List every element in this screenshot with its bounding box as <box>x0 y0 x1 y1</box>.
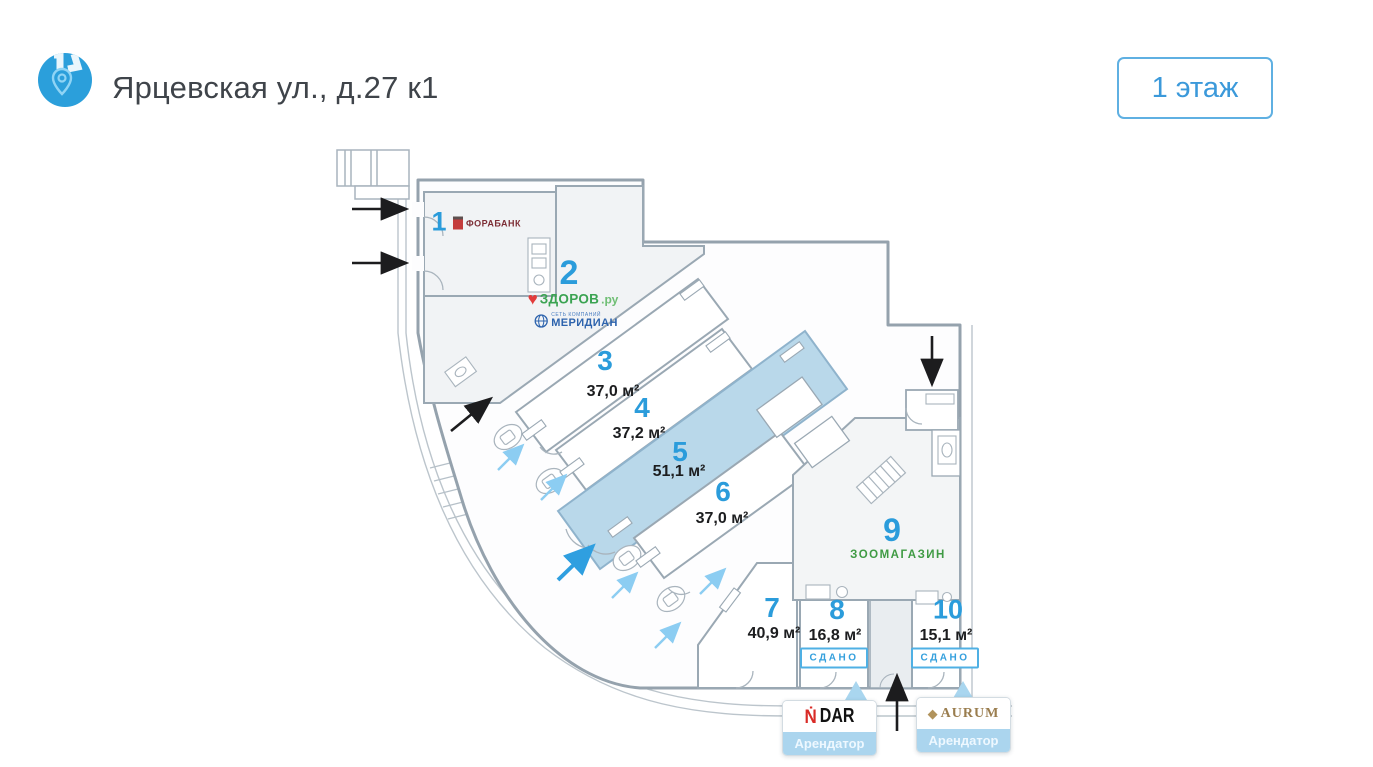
app-logo <box>38 53 92 107</box>
unit-6-number[interactable]: 6 <box>715 478 731 506</box>
unit-9-tenant: ЗООМАГАЗИН <box>850 549 946 561</box>
unit-10-status-badge: СДАНО <box>911 648 979 669</box>
tenant-callout-aurum: ◆ AURUM Арендатор <box>916 697 1011 753</box>
unit-10-area: 15,1 м² <box>920 628 973 644</box>
meridian-logo: СЕТЬ КОМПАНИЙ МЕРИДИАН <box>534 313 618 329</box>
tenant-label: Арендатор <box>917 729 1010 752</box>
unit-6-area: 37,0 м² <box>696 511 749 527</box>
unit-8-area: 16,8 м² <box>809 628 862 644</box>
tenant-callout-dar: Ṅ DAR Арендатор <box>782 700 877 756</box>
unit-10-number[interactable]: 10 <box>933 597 963 624</box>
forabank-icon <box>453 217 463 230</box>
dar-logo: Ṅ DAR <box>783 701 876 732</box>
tenant-label: Арендатор <box>783 732 876 755</box>
unit-7-area: 40,9 м² <box>748 626 801 642</box>
heart-icon: ♥ <box>528 291 538 308</box>
forabank-logo: ФОРАБАНК <box>453 217 521 230</box>
top-left-stairs <box>337 150 409 199</box>
unit-4-number[interactable]: 4 <box>634 394 650 422</box>
zdorov-logo: ♥ ЗДОРОВ.ру <box>528 291 619 308</box>
unit-2-number[interactable]: 2 <box>560 256 579 290</box>
unit-5-number[interactable]: 5 <box>672 438 688 466</box>
unit-1-number[interactable]: 1 <box>431 209 446 236</box>
floor-selector-button[interactable]: 1 этаж <box>1117 57 1273 119</box>
unit-5-area: 51,1 м² <box>653 464 706 480</box>
floorplan-page: Ярцевская ул., д.27 к1 1 этаж 1 ФОРАБАНК… <box>0 0 1373 767</box>
page-title: Ярцевская ул., д.27 к1 <box>112 70 439 106</box>
globe-icon <box>534 314 548 328</box>
dar-mark-icon: Ṅ <box>805 705 817 728</box>
unit-3-area: 37,0 м² <box>587 384 640 400</box>
unit-4-area: 37,2 м² <box>613 426 666 442</box>
unit-9-number[interactable]: 9 <box>883 514 901 546</box>
unit-8-status-badge: СДАНО <box>800 648 868 669</box>
diamond-icon: ◆ <box>928 706 938 722</box>
aurum-logo: ◆ AURUM <box>917 698 1010 729</box>
unit-7-number[interactable]: 7 <box>764 594 780 622</box>
unit-8-number[interactable]: 8 <box>829 596 845 624</box>
unit-3-number[interactable]: 3 <box>597 347 613 375</box>
